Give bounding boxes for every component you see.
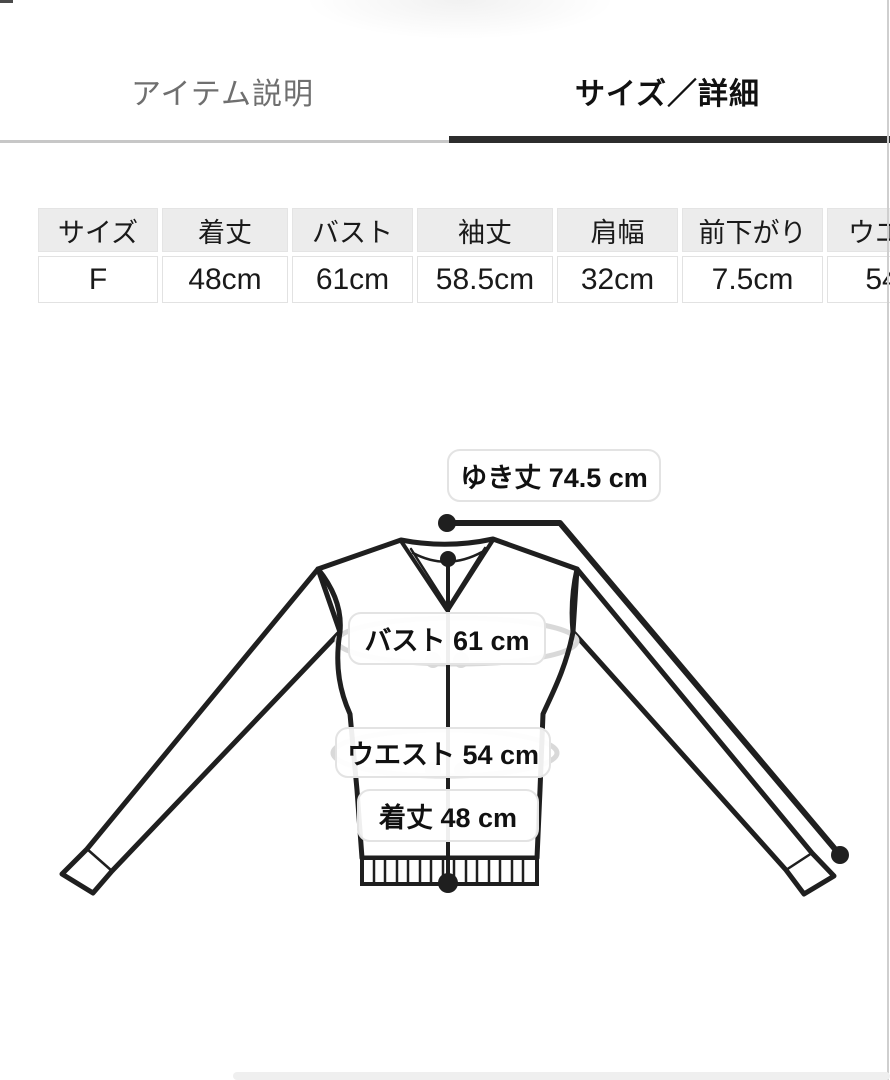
tab-size-detail[interactable]: サイズ／詳細 xyxy=(445,0,890,140)
hem-ribbing xyxy=(362,858,537,884)
header-shoulder: 肩幅 xyxy=(557,208,678,252)
header-front-drop: 前下がり xyxy=(682,208,823,252)
neckline-lines xyxy=(401,540,493,610)
hem-dot xyxy=(438,873,458,893)
header-sleeve: 袖丈 xyxy=(417,208,553,252)
tab-item-description[interactable]: アイテム説明 xyxy=(0,0,445,140)
header-size: サイズ xyxy=(38,208,158,252)
table-row: F 48cm 61cm 58.5cm 32cm 7.5cm 54cm xyxy=(38,256,890,303)
header-body-length: 着丈 xyxy=(162,208,288,252)
size-spec-table: サイズ 着丈 バスト 袖丈 肩幅 前下がり ウエスト F 48cm 61cm 5… xyxy=(38,208,890,303)
value-shoulder: 32cm xyxy=(557,256,678,303)
cuff-seams xyxy=(87,849,812,871)
yuki-end-dot xyxy=(831,846,849,864)
value-bust: 61cm xyxy=(292,256,413,303)
header-waist: ウエスト xyxy=(827,208,890,252)
waist-label: ウエスト 54 cm xyxy=(335,727,551,778)
screen-right-border xyxy=(887,0,889,1080)
yuki-start-dot xyxy=(438,514,456,532)
neck-dot xyxy=(440,551,456,567)
value-waist: 54cm xyxy=(827,256,890,303)
bottom-section-divider xyxy=(233,1072,890,1080)
garment-diagram xyxy=(0,0,890,1080)
bust-label: バスト 61 cm xyxy=(348,612,546,665)
tab-bar: アイテム説明 サイズ／詳細 xyxy=(0,0,890,143)
active-tab-indicator xyxy=(449,136,890,143)
header-bust: バスト xyxy=(292,208,413,252)
value-size: F xyxy=(38,256,158,303)
value-sleeve: 58.5cm xyxy=(417,256,553,303)
body-length-label: 着丈 48 cm xyxy=(357,789,539,842)
yuki-length-label: ゆき丈 74.5 cm xyxy=(447,449,661,502)
value-front-drop: 7.5cm xyxy=(682,256,823,303)
size-detail-page: { "tabs": [ { "label": "アイテム説明", "active… xyxy=(0,0,890,1080)
table-header-row: サイズ 着丈 バスト 袖丈 肩幅 前下がり ウエスト xyxy=(38,208,890,252)
value-body-length: 48cm xyxy=(162,256,288,303)
